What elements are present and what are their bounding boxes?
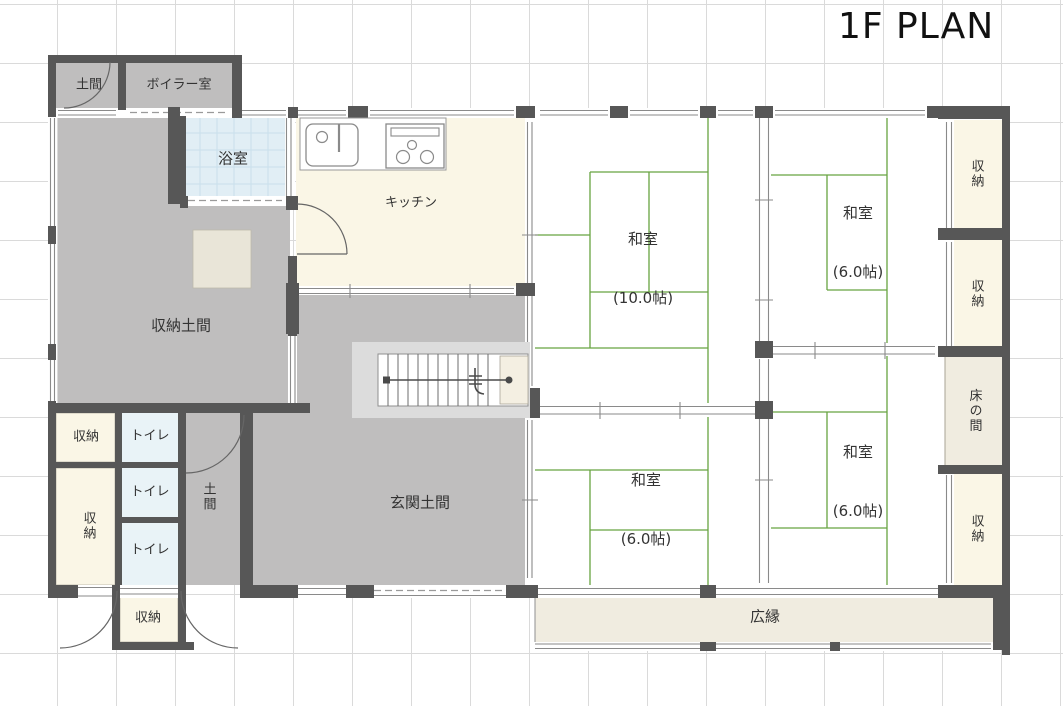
room-label-boiler: ボイラー室 [146, 78, 211, 95]
room-label-doma-small: 土間 [199, 482, 216, 512]
room-label-storage-left-upper: 収納 [73, 430, 99, 447]
kitchen-counter [300, 118, 446, 170]
room-label-storage-porch: 収納 [135, 611, 161, 628]
room-label-genkan-doma: 玄関土間 [390, 493, 450, 513]
room-label-toilet-1: トイレ [130, 429, 169, 446]
room-label-toilet-2: トイレ [130, 485, 169, 502]
room-label-kitchen: キッチン [385, 196, 437, 213]
door-arc-porch-right [181, 591, 238, 648]
washitsu-bottom-right-size: (6.0帖) [833, 501, 884, 521]
room-label-storage-doma: 収納土間 [151, 316, 211, 336]
floorplan-graphics [0, 0, 1063, 706]
staircase [352, 342, 530, 418]
washitsu-bottom-left-size: (6.0帖) [621, 529, 672, 549]
room-label-bath: 浴室 [218, 149, 248, 169]
room-label-washitsu-top-right: 和室 (6.0帖) [833, 165, 884, 302]
room-label-storage-left-lower: 収納 [79, 511, 96, 541]
washitsu-large-name: 和室 [613, 230, 673, 250]
plan-title: 1F PLAN [838, 6, 994, 47]
washitsu-bottom-right-name: 和室 [833, 443, 884, 463]
room-label-storage-right-2: 収納 [967, 279, 984, 309]
room-label-washitsu-large: 和室 (10.0帖) [613, 191, 673, 328]
washitsu-top-right-name: 和室 [833, 204, 884, 224]
room-label-washitsu-bottom-right: 和室 (6.0帖) [833, 404, 884, 541]
washitsu-large-size: (10.0帖) [613, 288, 673, 308]
room-label-hiroen: 広縁 [750, 607, 780, 627]
door-arc-porch-left [60, 591, 117, 648]
room-label-washitsu-bottom-left: 和室 (6.0帖) [621, 432, 672, 569]
room-label-storage-right-1: 収納 [967, 159, 984, 189]
room-label-storage-right-3: 収納 [967, 514, 984, 544]
room-label-doma-top-left: 土間 [76, 78, 102, 95]
washitsu-top-right-size: (6.0帖) [833, 262, 884, 282]
floor-plan: 1F PLAN 土間 ボイラー室 浴室 キッチン 収納土間 収納 収納 トイレ … [0, 0, 1063, 706]
room-label-tokonoma: 床の間 [965, 389, 982, 434]
washitsu-bottom-left-name: 和室 [621, 471, 672, 491]
room-label-toilet-3: トイレ [130, 543, 169, 560]
